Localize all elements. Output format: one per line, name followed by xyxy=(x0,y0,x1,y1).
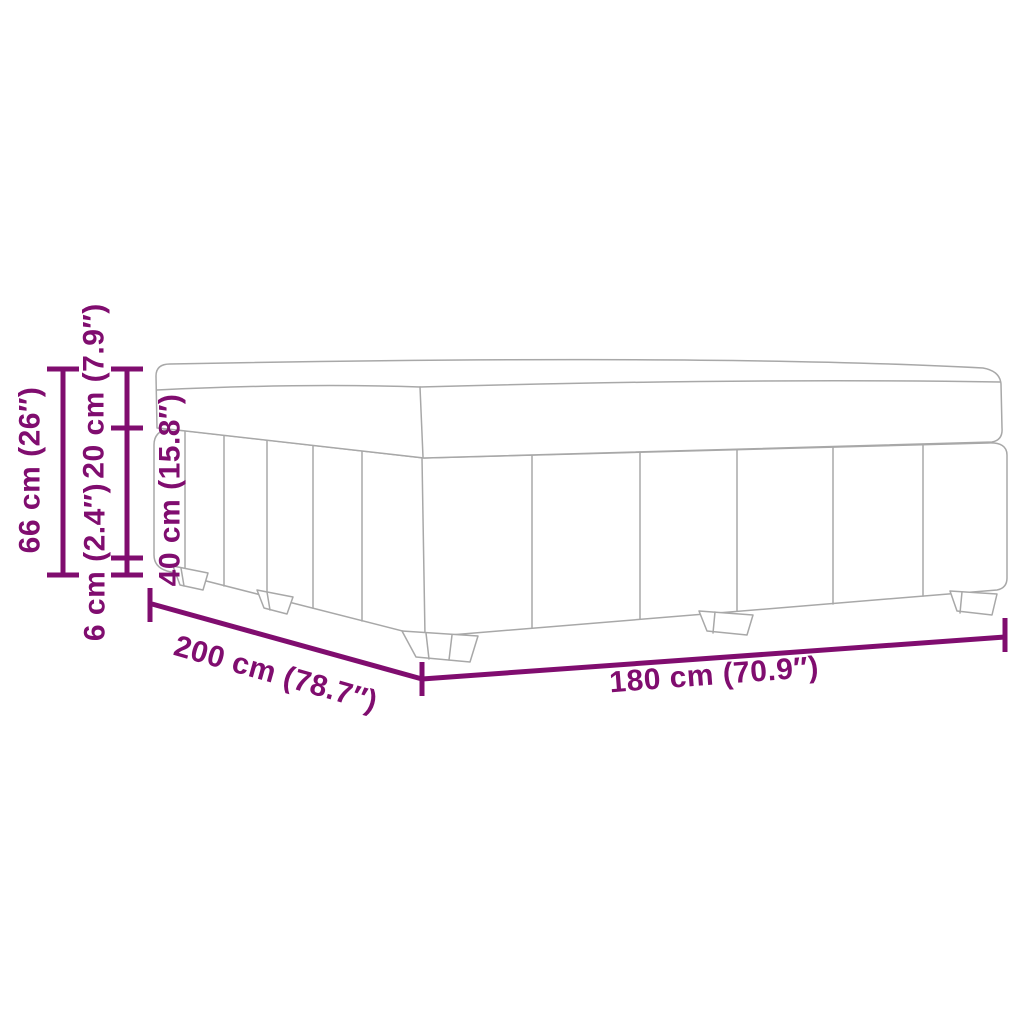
length-label: 200 cm (78.7″) xyxy=(170,630,381,719)
bed-leg xyxy=(699,611,753,635)
total-height-dimension xyxy=(47,369,79,575)
leg-height-label: 6 cm (2.4″) xyxy=(79,483,112,641)
boxspring-bed-outline xyxy=(154,360,1007,662)
total-height-label: 66 cm (26″) xyxy=(14,387,47,554)
bed-leg xyxy=(950,591,997,615)
diagram-canvas: 66 cm (26″) 20 cm (7.9″) 6 cm (2.4″) 40 … xyxy=(0,0,1024,1024)
width-label: 180 cm (70.9″) xyxy=(608,651,820,700)
segment-height-dimension xyxy=(111,369,143,575)
bed-leg xyxy=(402,631,478,662)
mattress-height-label: 20 cm (7.9″) xyxy=(78,303,111,478)
dimension-diagram: 66 cm (26″) 20 cm (7.9″) 6 cm (2.4″) 40 … xyxy=(0,0,1024,1024)
base-height-label: 40 cm (15.8″) xyxy=(154,394,187,587)
